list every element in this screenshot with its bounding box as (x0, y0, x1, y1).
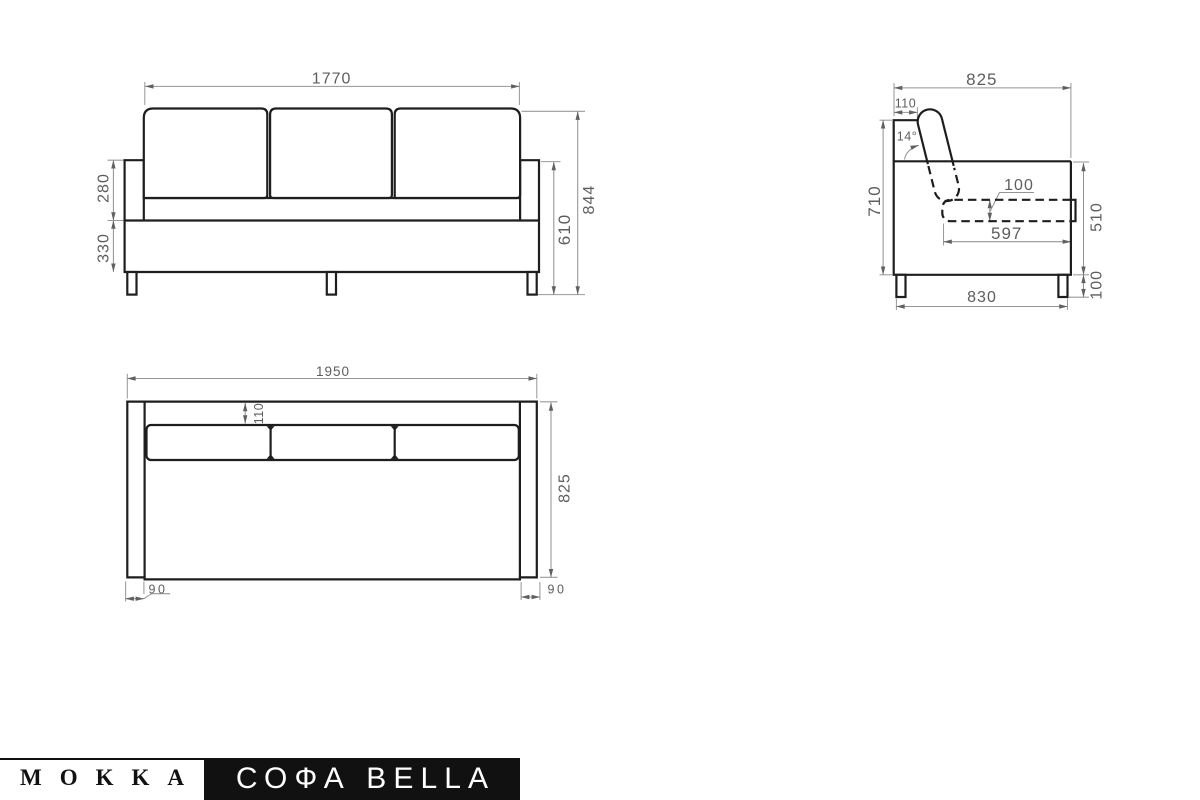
svg-text:1770: 1770 (312, 71, 352, 88)
svg-text:280: 280 (96, 173, 113, 203)
svg-text:710: 710 (865, 185, 884, 216)
svg-text:825: 825 (966, 70, 997, 89)
svg-text:610: 610 (555, 214, 574, 245)
svg-text:330: 330 (96, 233, 113, 263)
svg-text:90: 90 (548, 582, 567, 596)
svg-text:825: 825 (556, 473, 573, 503)
svg-text:844: 844 (581, 185, 598, 215)
svg-text:100: 100 (1004, 177, 1034, 194)
svg-text:1950: 1950 (316, 364, 350, 379)
svg-text:830: 830 (967, 289, 997, 306)
svg-text:90: 90 (149, 582, 168, 596)
svg-text:597: 597 (991, 224, 1022, 243)
svg-text:110: 110 (252, 403, 266, 424)
svg-text:110: 110 (895, 97, 916, 111)
svg-text:14°: 14° (897, 130, 917, 144)
svg-text:510: 510 (1089, 202, 1106, 232)
svg-text:100: 100 (1089, 270, 1106, 300)
